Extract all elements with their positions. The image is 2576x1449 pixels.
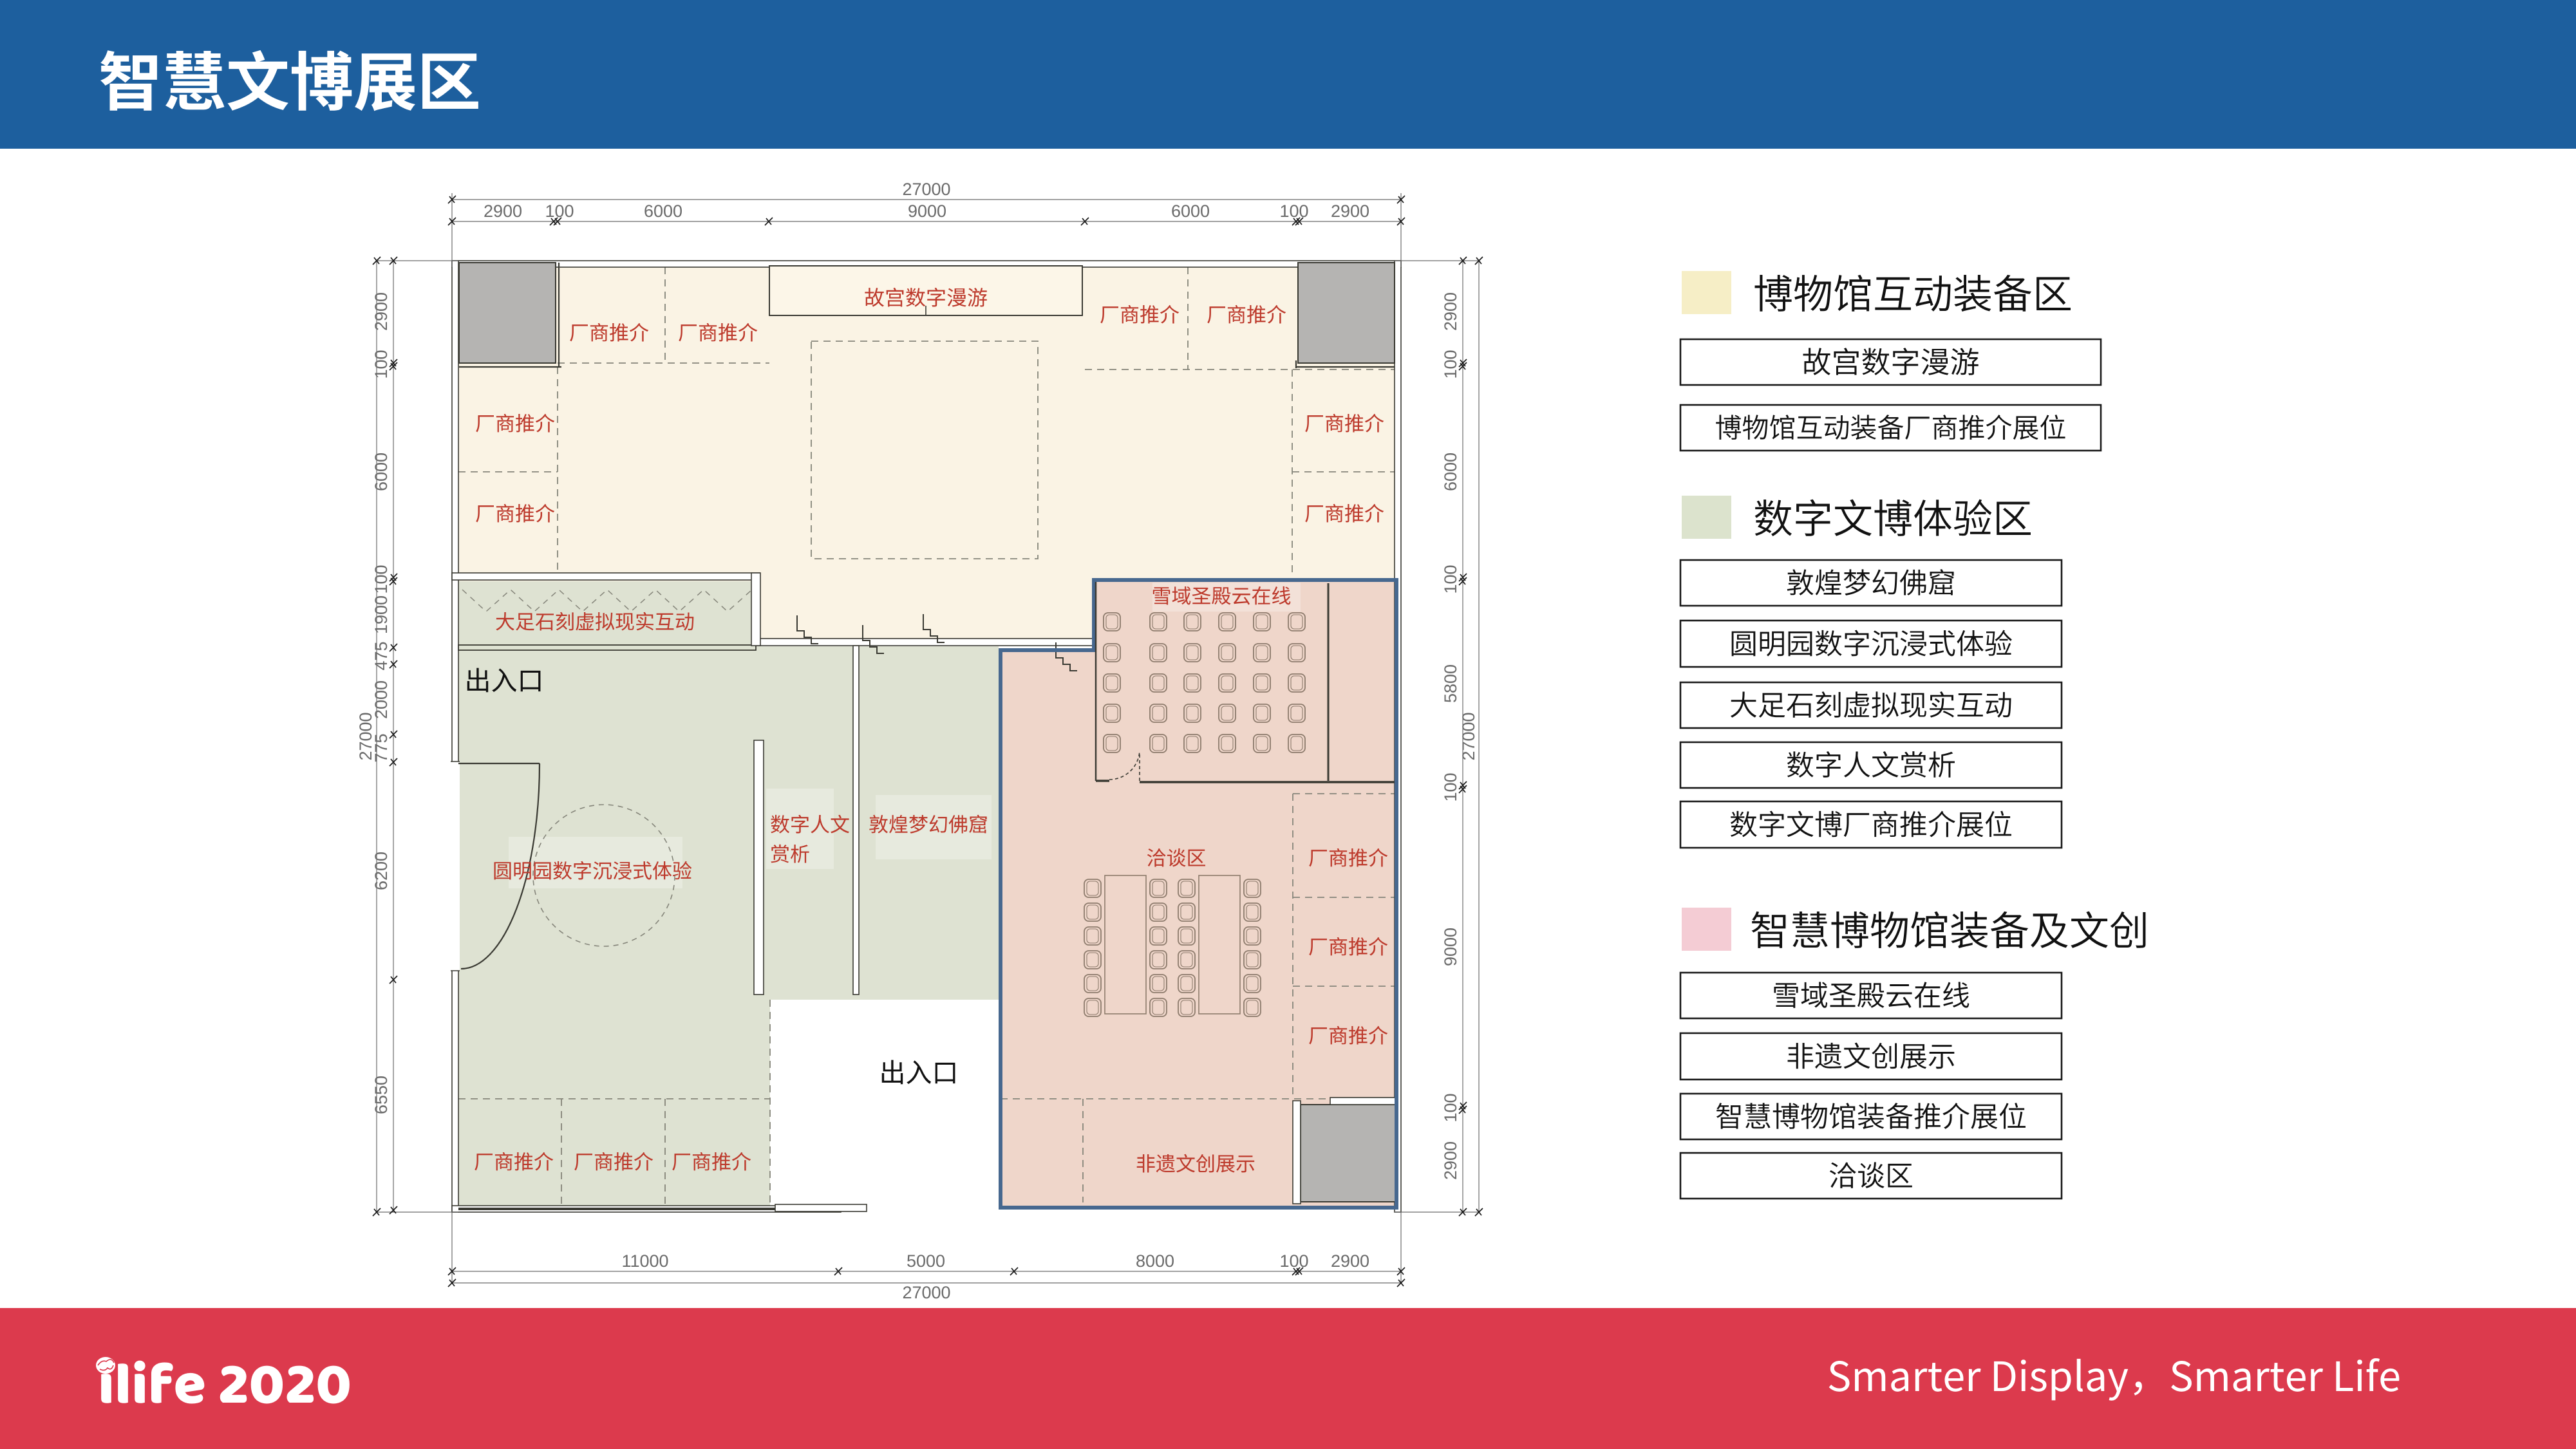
svg-text:2000: 2000 bbox=[371, 680, 391, 719]
svg-text:6000: 6000 bbox=[371, 453, 391, 491]
svg-text:100: 100 bbox=[1279, 1251, 1308, 1271]
svg-text:2900: 2900 bbox=[1331, 1251, 1369, 1271]
svg-text:27000: 27000 bbox=[902, 1283, 950, 1302]
svg-text:9000: 9000 bbox=[1441, 928, 1460, 966]
svg-text:100: 100 bbox=[545, 201, 574, 221]
svg-text:100: 100 bbox=[371, 350, 391, 379]
svg-text:6000: 6000 bbox=[644, 201, 682, 221]
svg-text:6000: 6000 bbox=[1171, 201, 1210, 221]
svg-text:27000: 27000 bbox=[902, 180, 950, 199]
svg-text:100: 100 bbox=[1279, 201, 1308, 221]
svg-text:775: 775 bbox=[371, 733, 391, 762]
svg-text:2900: 2900 bbox=[484, 201, 522, 221]
svg-text:100: 100 bbox=[1441, 565, 1460, 594]
svg-text:2900: 2900 bbox=[1441, 1141, 1460, 1180]
svg-text:100: 100 bbox=[371, 565, 391, 594]
svg-text:100: 100 bbox=[1441, 350, 1460, 379]
svg-text:2900: 2900 bbox=[1441, 292, 1460, 331]
svg-text:8000: 8000 bbox=[1136, 1251, 1174, 1271]
svg-text:475: 475 bbox=[371, 641, 391, 670]
svg-text:6550: 6550 bbox=[371, 1076, 391, 1114]
svg-text:5000: 5000 bbox=[907, 1251, 945, 1271]
svg-text:2900: 2900 bbox=[371, 292, 391, 331]
svg-text:11000: 11000 bbox=[621, 1251, 668, 1271]
svg-text:100: 100 bbox=[1441, 772, 1460, 801]
svg-text:1900: 1900 bbox=[371, 595, 391, 634]
svg-text:27000: 27000 bbox=[1459, 712, 1478, 760]
svg-text:2900: 2900 bbox=[1331, 201, 1369, 221]
svg-text:5800: 5800 bbox=[1441, 664, 1460, 703]
svg-text:6200: 6200 bbox=[371, 852, 391, 890]
svg-text:9000: 9000 bbox=[908, 201, 946, 221]
svg-text:6000: 6000 bbox=[1441, 453, 1460, 491]
svg-text:100: 100 bbox=[1441, 1093, 1460, 1122]
